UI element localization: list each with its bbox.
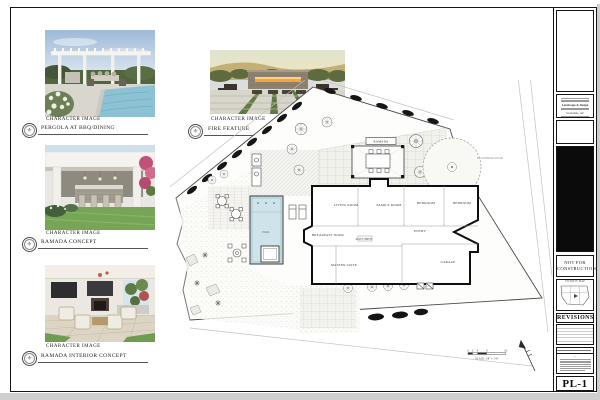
callout-label-ramada-interior: RAMADA INTERIOR CONCEPT [41,353,127,359]
scale-tick: 4 [477,349,479,352]
not-for-construction-text: NOT FOR CONSTRUCTION [557,256,593,271]
not-for-construction-box: NOT FOR CONSTRUCTION [556,255,594,277]
vicinity-map-box: VICINITY MAP [556,279,594,311]
photo-caption: CHARACTER IMAGE [46,344,101,349]
sheet-number-box: PL-1 [556,376,594,391]
room-label-breakfast: BREAKFAST NOOK [312,233,345,237]
titleblock-logo-box: AXIOM Landscape & Design ⚜ [556,10,594,92]
photo-caption: CHARACTER IMAGE [46,231,101,236]
info-text-line [561,116,589,118]
fleur-icon: ⚜ [24,125,35,136]
room-label-master: MASTER SUITE [331,263,357,267]
vicinity-map-sketch [557,283,593,309]
page-edge-bottom [0,393,600,400]
callout-label-ramada: RAMADA CONCEPT [41,239,96,245]
outdoor-kitchen [252,154,261,186]
info-text-line [561,108,589,110]
titleblock-info-box: Landscape & Design Scottsdale, AZ [556,94,594,118]
sheet-number: PL-1 [557,377,593,391]
scale-tick: 0 [467,349,469,352]
disclaimer-text-line [560,370,586,371]
pool-label: POOL [262,231,270,234]
site-plan: FLOWERING PEAR POOL [170,80,553,380]
info-line-city: Scottsdale, AZ [557,111,593,115]
room-label-living: LIVING ROOM [334,203,358,207]
ramada-photo-art [45,145,155,230]
room-label-kitchen: KITCHEN [356,237,372,241]
scale-tick: 16 [504,349,507,352]
photo-ramada-interior [45,265,155,342]
photo-ramada-concept [45,145,155,230]
scale-tick: 2 [472,349,474,352]
titleblock-separator [553,7,554,391]
revisions-table [556,324,594,345]
room-label-garage: GARAGE [440,260,455,264]
pool: POOL [250,196,283,264]
callout-underline [38,362,148,363]
fleur-icon: ⚜ [24,353,35,364]
pergola-photo-art [45,30,155,117]
fleur-icon: ⚜ [24,239,35,250]
scale-text: SCALE: 1/8" = 1'-0" [475,357,498,360]
callout-label-pergola: PERGOLA AT BBQ/DINING [41,125,115,131]
info-text-line [561,98,589,100]
room-label-bedroom-1: BEDROOM [417,201,435,205]
north-arrow-icon [519,341,535,371]
revisions-label: REVISIONS [557,314,593,323]
callout-symbol-icon: ⚜ [22,123,37,138]
ramada-interior-photo-art [45,265,155,342]
titleblock-black-panel [556,146,594,252]
scale-tick: 8 [486,349,488,352]
south-shrubs [368,308,428,321]
photo-caption: CHARACTER IMAGE [46,117,101,122]
info-line-company: Landscape & Design [557,103,593,107]
ramada-label: RAMADA [374,140,390,144]
callout-underline [38,134,148,135]
flowering-pear-label: FLOWERING PEAR [477,156,503,160]
room-label-bedroom-2: BEDROOM [453,201,471,205]
revisions-header: REVISIONS [556,313,594,323]
callout-symbol-icon: ⚜ [22,351,37,366]
disclaimer-title: — [557,355,593,358]
room-label-family: FAMILY ROOM [377,203,402,207]
room-label-entry: ENTRY [414,229,426,233]
scale-bar: 0 2 4 8 16 SCALE: 1/8" = 1'-0" [467,349,507,360]
callout-underline [38,248,148,249]
disclaimer-block: — [556,353,594,374]
callout-symbol-icon: ⚜ [22,237,37,252]
titleblock-empty-box [556,120,594,144]
house: LIVING ROOM FAMILY ROOM BEDROOM BEDROOM … [304,179,478,284]
photo-pergola-bbq-dining [45,30,155,117]
info-text-line [561,100,589,102]
